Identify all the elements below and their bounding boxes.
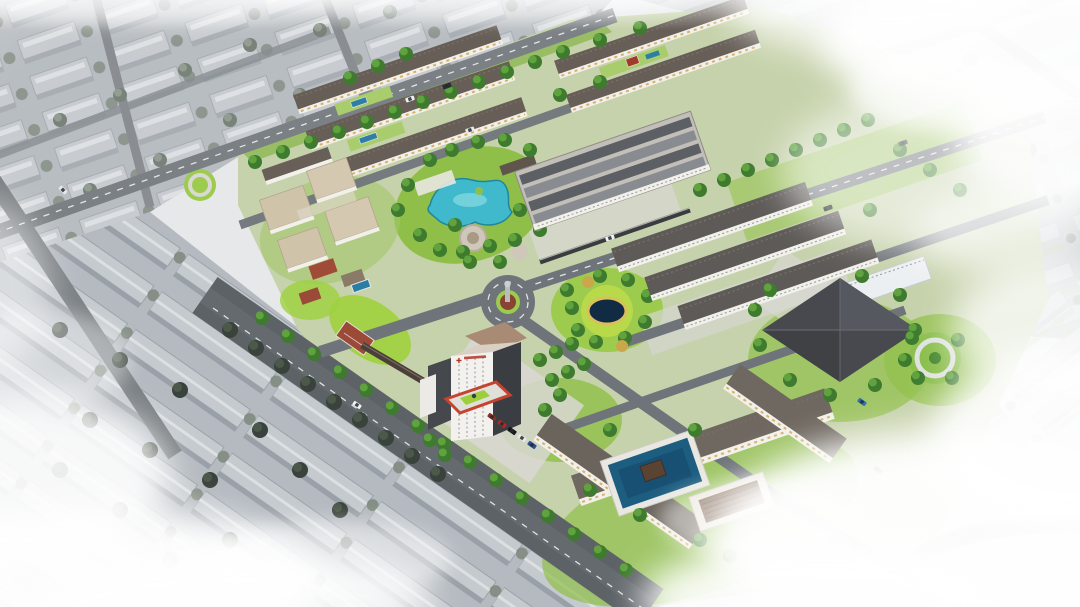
vignette-overlay [0, 0, 1080, 607]
scene-canvas: ✚ [0, 0, 1080, 607]
aerial-rendering: ✚ [0, 0, 1080, 607]
